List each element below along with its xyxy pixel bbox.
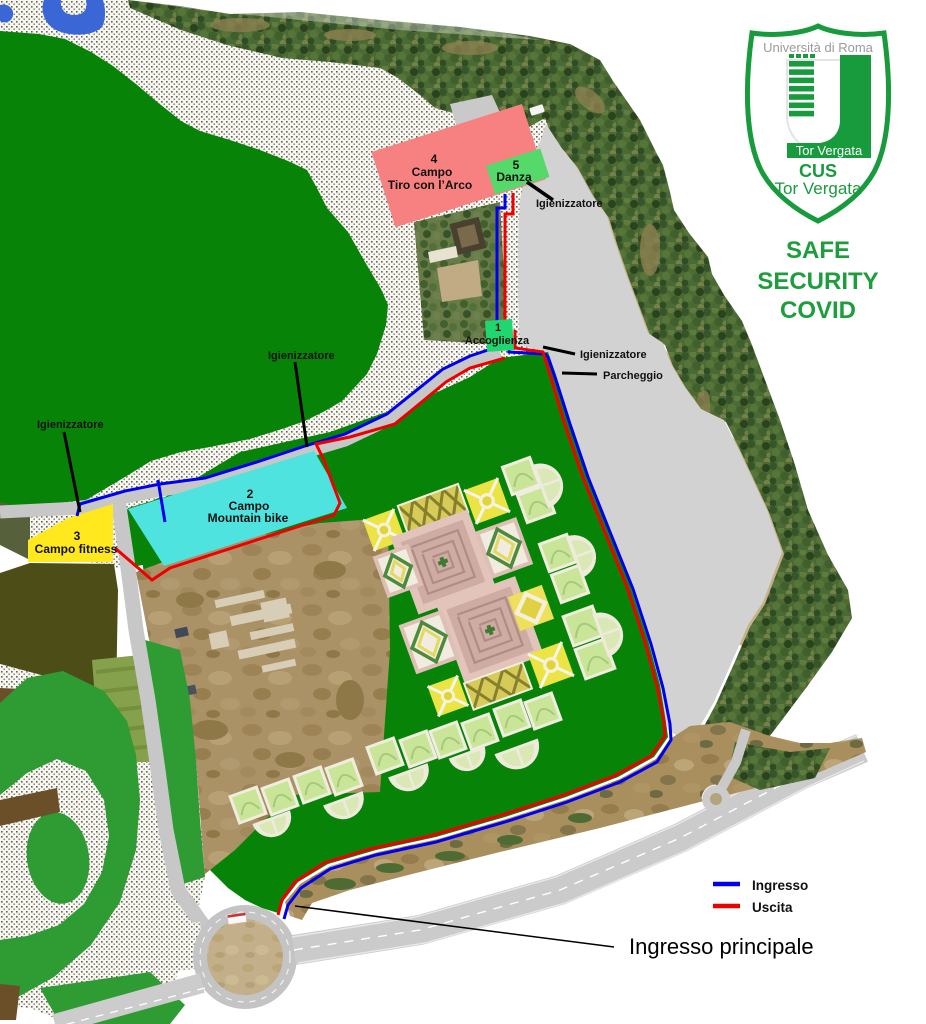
svg-text:Ingresso: Ingresso [752,878,808,893]
svg-text:Mountain bike: Mountain bike [208,511,289,525]
svg-text:SECURITY: SECURITY [757,268,878,295]
svg-text:Università di Roma: Università di Roma [763,40,874,55]
svg-text:1: 1 [495,322,501,334]
svg-text:CUS: CUS [799,161,837,181]
svg-text:Ingresso principale: Ingresso principale [629,934,814,959]
svg-text:Campo fitness: Campo fitness [35,542,118,556]
svg-text:Parcheggio: Parcheggio [603,370,663,382]
svg-text:SAFE: SAFE [786,237,850,264]
svg-text:Campo: Campo [412,165,453,179]
svg-text:Tor Vergata: Tor Vergata [775,179,862,198]
svg-text:Igienizzatore: Igienizzatore [37,419,104,431]
svg-text:COVID: COVID [780,297,856,324]
svg-text:4: 4 [431,152,438,166]
svg-text:Accoglienza: Accoglienza [465,335,530,347]
svg-text:Igienizzatore: Igienizzatore [268,350,335,362]
svg-text:3: 3 [74,529,81,543]
svg-text:Igienizzatore: Igienizzatore [580,349,647,361]
svg-text:Danza: Danza [496,170,532,184]
svg-text:Igienizzatore: Igienizzatore [536,198,603,210]
svg-text:Uscita: Uscita [752,900,793,915]
svg-text:Tor Vergata: Tor Vergata [796,143,863,158]
svg-text:Tiro con l’Arco: Tiro con l’Arco [388,178,472,192]
